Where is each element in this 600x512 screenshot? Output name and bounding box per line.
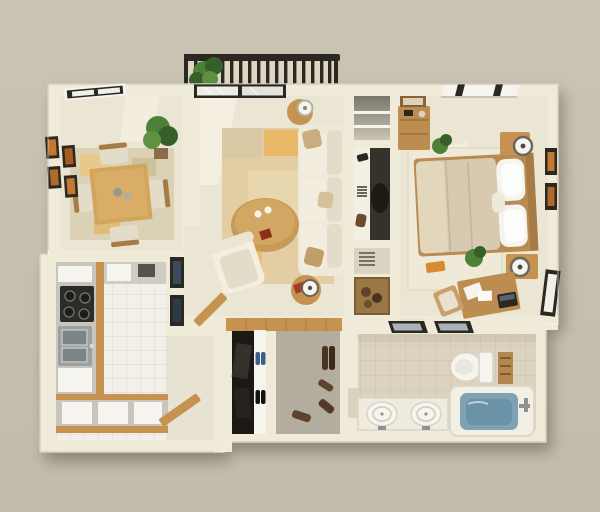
art-frame: [170, 257, 184, 288]
dresser: [398, 106, 430, 150]
kitchen-counter-top: [104, 262, 166, 284]
faucet: [378, 426, 386, 430]
nook-striped-item: [356, 184, 368, 199]
art-frame: [170, 295, 184, 326]
bathroom-door-opening: [348, 388, 358, 418]
dining-chair: [99, 142, 129, 165]
side-table-bottom: [291, 275, 321, 305]
entry-floor: [166, 336, 214, 440]
countertop-appliance: [138, 264, 155, 277]
hallway-wood-floor: [226, 318, 342, 331]
floor-plan-render: [0, 0, 600, 512]
throw-pillow: [301, 128, 322, 149]
dresser-art: [400, 96, 426, 107]
side-table-top: [287, 99, 313, 125]
bathroom-wall-shadow: [358, 334, 536, 342]
dining-chair: [109, 224, 139, 247]
nook-vent-cubby: [354, 248, 390, 274]
bathroom-mirror: [388, 321, 428, 333]
cooktop: [60, 286, 94, 322]
hanging-clothes: [234, 387, 252, 418]
art-frame: [62, 145, 77, 168]
bed: [414, 153, 539, 257]
art-frame: [47, 166, 62, 189]
kitchen-sink: [58, 326, 94, 366]
sofa: [298, 124, 344, 276]
art-frame: [545, 183, 557, 210]
bedroom-window: [441, 84, 520, 98]
entry-hall-wall: [214, 318, 232, 452]
art-frame: [64, 175, 79, 198]
hall-bath-wall: [340, 330, 358, 434]
storage-basket: [355, 278, 389, 314]
toilet: [451, 352, 493, 383]
bathtub: [450, 386, 534, 436]
dining-living-wall: [182, 96, 200, 226]
nook-west-wall: [344, 96, 354, 318]
balcony-sliding-door: [194, 84, 286, 98]
storage-nook: [354, 96, 390, 314]
nightstand-top: [500, 132, 532, 155]
kitchen-counter-bottom: [56, 394, 168, 433]
dining-kitchen-wall: [48, 250, 166, 262]
throw-pillow: [317, 191, 334, 209]
office-chair: [371, 183, 389, 213]
accent-pillow: [491, 192, 505, 213]
nook-shelf-cabinet: [354, 96, 390, 140]
faucet: [422, 426, 430, 430]
closet-divider-wall: [266, 330, 276, 434]
art-frame: [45, 136, 60, 159]
counter-wood-edge: [96, 262, 104, 396]
vanity: [358, 398, 448, 430]
closet-shelf-strip: [254, 330, 266, 434]
art-frame: [545, 148, 557, 175]
bathroom-mirror: [434, 321, 474, 333]
towel-shelf: [498, 352, 513, 384]
